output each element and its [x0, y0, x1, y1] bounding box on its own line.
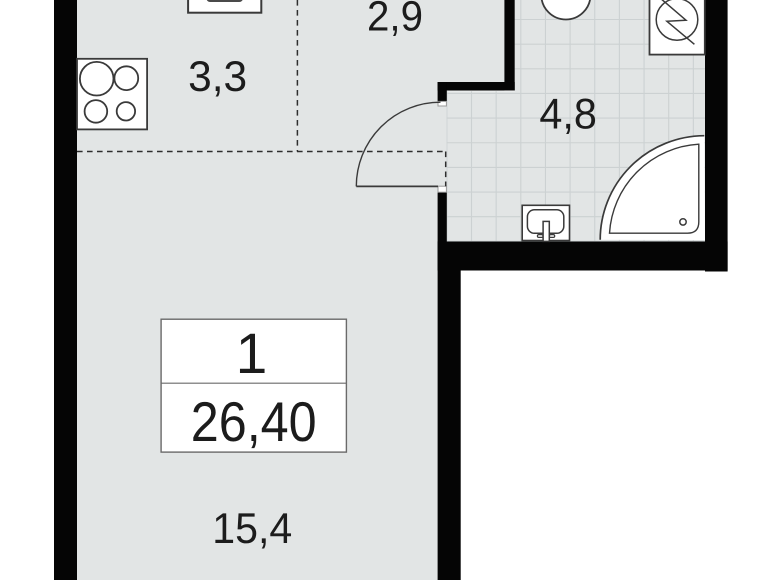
svg-text:26,40: 26,40	[191, 390, 317, 453]
svg-text:1: 1	[236, 322, 268, 386]
svg-text:4,8: 4,8	[539, 91, 597, 139]
svg-text:2,9: 2,9	[367, 0, 423, 41]
svg-text:15,4: 15,4	[212, 505, 292, 553]
svg-text:3,3: 3,3	[188, 53, 247, 101]
